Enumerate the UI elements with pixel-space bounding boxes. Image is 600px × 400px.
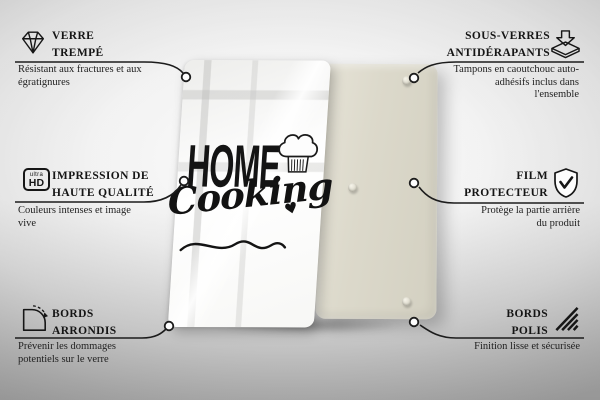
rubber-pad [348, 183, 357, 192]
feature-description: Résistant aux fractures et aux égratignu… [18, 64, 168, 89]
ultra-hd-icon: ultra HD [23, 168, 50, 191]
rubber-pad [402, 76, 411, 85]
feature-description: Prévenir les dommages potentiels sur le … [18, 341, 150, 366]
rubber-pad [402, 297, 411, 306]
back-panel [315, 64, 437, 320]
flourish-swash [178, 230, 288, 258]
polished-edge-icon [550, 305, 582, 332]
feature-description: Tampons en caoutchouc auto-adhésifs incl… [453, 64, 579, 102]
feature-title-protective-film: FILM PROTECTEUR [448, 168, 548, 202]
feature-description: Protège la partie arrière du produit [474, 205, 580, 230]
hd-label: HD [29, 178, 45, 188]
feature-title-non-slip-coasters: SOUS-VERRES ANTIDÉRAPANTS [438, 28, 550, 62]
shield-check-icon [552, 167, 580, 199]
non-slip-coaster-icon [549, 29, 582, 59]
front-glass-panel: HOME Cooking ♥ [168, 60, 331, 328]
product-feature-diagram: HOME Cooking ♥ [0, 0, 600, 400]
feature-description: Couleurs intenses et image vive [18, 205, 138, 230]
feature-title-tempered-glass: VERRE TREMPÉ [52, 28, 130, 62]
rounded-corner-icon [19, 304, 48, 333]
diamond-icon [18, 29, 48, 56]
feature-title-polished-edges: BORDS POLIS [468, 306, 548, 340]
feature-title-print-quality: IMPRESSION DE HAUTE QUALITÉ [52, 168, 158, 202]
feature-description: Finition lisse et sécurisée [408, 341, 580, 354]
feature-title-rounded-edges: BORDS ARRONDIS [52, 306, 122, 340]
